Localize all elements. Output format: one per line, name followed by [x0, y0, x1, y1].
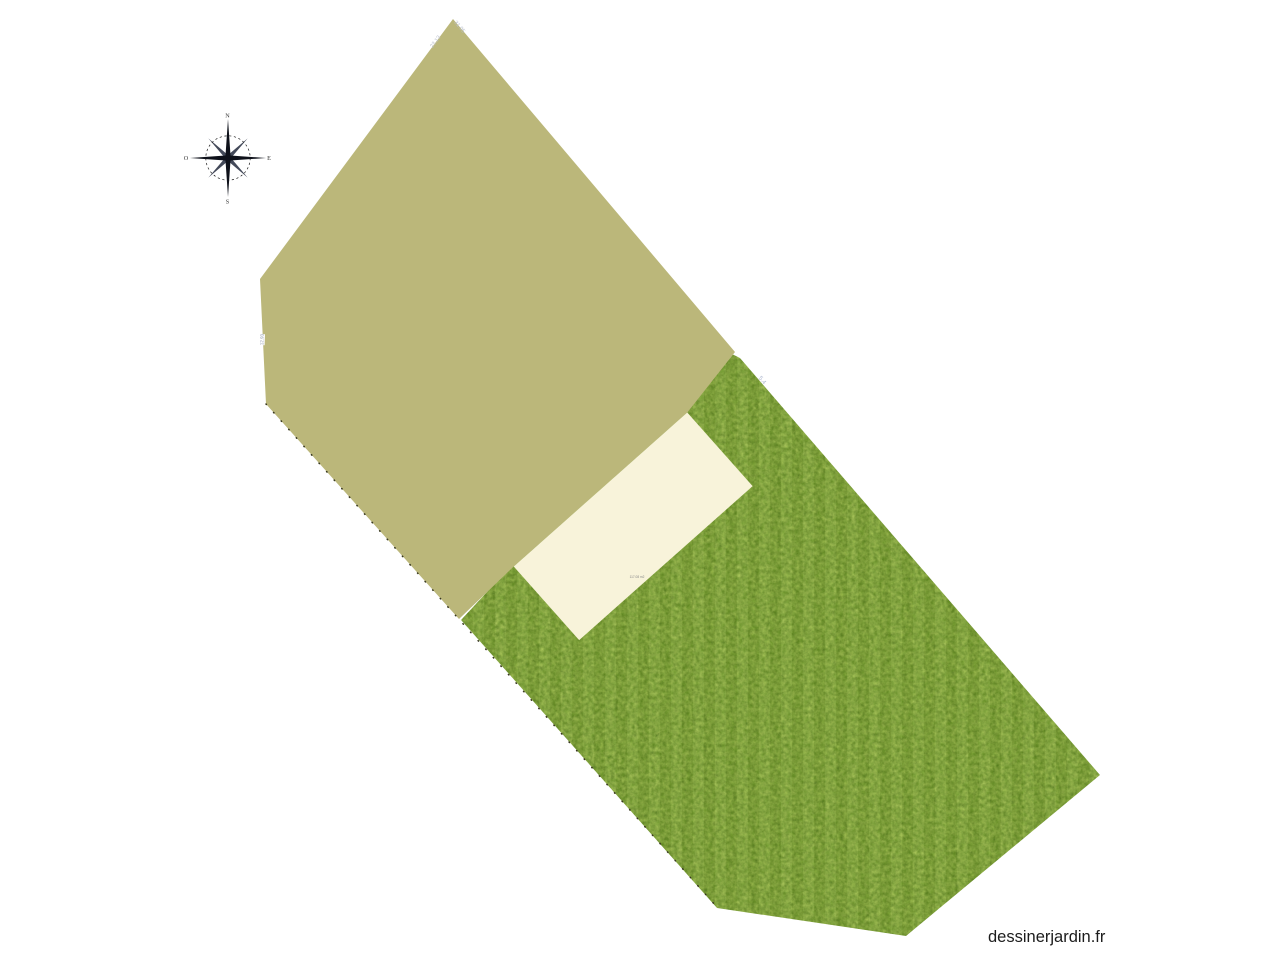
svg-text:117.08 m2: 117.08 m2	[630, 575, 645, 579]
svg-text:E: E	[267, 155, 271, 162]
svg-text:dessinerjardin.fr: dessinerjardin.fr	[988, 928, 1106, 946]
svg-text:12.93: 12.93	[259, 333, 264, 345]
svg-text:N: N	[225, 113, 230, 120]
svg-text:S: S	[226, 199, 230, 206]
svg-text:O: O	[184, 155, 189, 162]
